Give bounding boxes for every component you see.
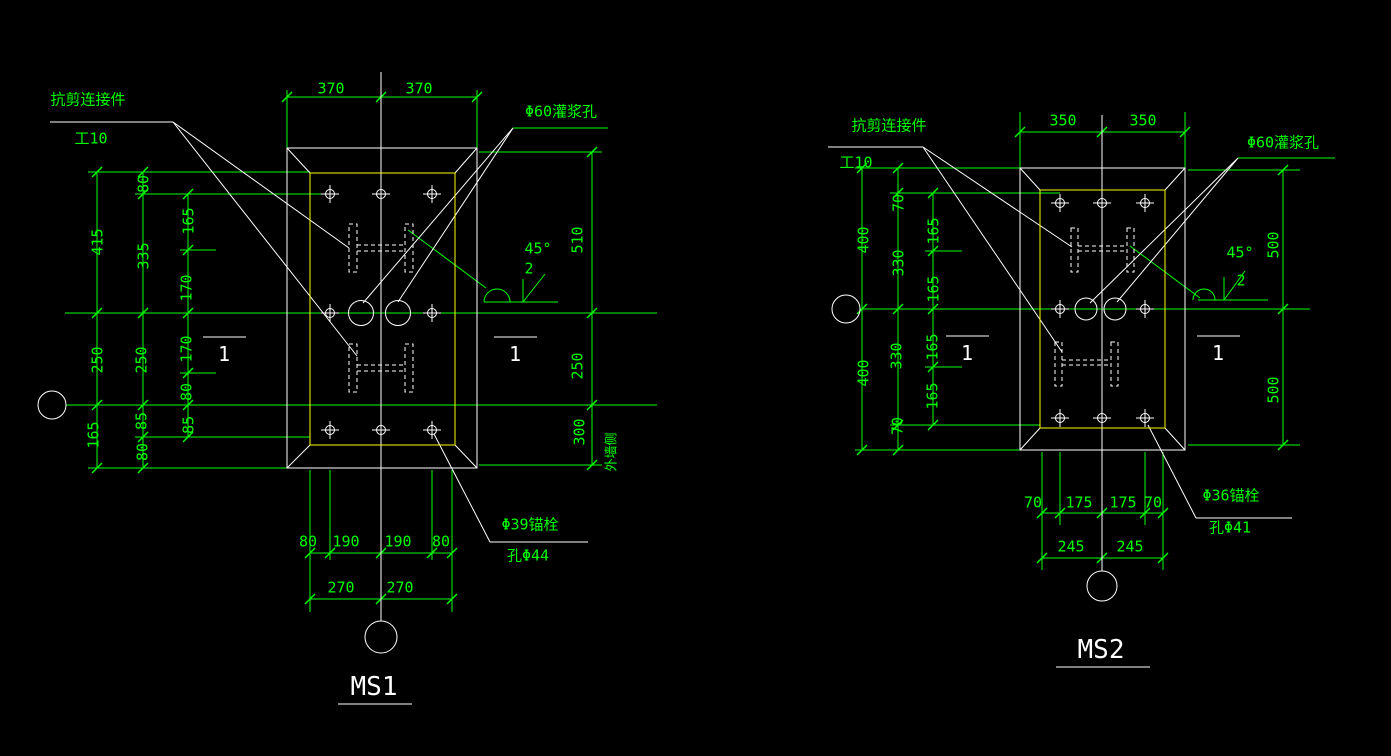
engineering-drawing-svg	[0, 0, 1391, 756]
dim-label: 400	[857, 226, 872, 253]
dim-label: 370	[317, 82, 344, 97]
axis-bubble	[832, 295, 860, 323]
dim-label: 250	[135, 346, 150, 373]
dim-label: 400	[857, 359, 872, 386]
dim-label: 245	[1116, 540, 1143, 555]
dim-label: 270	[386, 581, 413, 596]
axis-bubble	[38, 391, 66, 419]
dim-label: 415	[91, 228, 106, 255]
section-mark: 1	[218, 344, 230, 364]
dim-label: 80	[432, 535, 450, 550]
wall-side-label: 外墙侧	[606, 432, 619, 471]
shear-connector-label: 抗剪连接件	[851, 119, 926, 134]
bevel-angle-label: 45°	[524, 242, 551, 257]
dim-label: 350	[1049, 114, 1076, 129]
grout-hole-label: Φ60灌浆孔	[1247, 136, 1319, 151]
anchor-bolt-markers	[321, 185, 1154, 439]
dim-label: 370	[405, 82, 432, 97]
dim-label: 245	[1057, 540, 1084, 555]
dim-label: 70	[891, 417, 906, 435]
dim-label: 190	[384, 535, 411, 550]
section-mark: 1	[509, 344, 521, 364]
section-mark: 1	[961, 343, 973, 363]
detail-title-circle	[1087, 571, 1117, 601]
dim-label: 190	[332, 535, 359, 550]
dim-label: 80	[180, 383, 195, 401]
shear-connector-label: 抗剪连接件	[50, 93, 125, 108]
view-title: MS2	[1078, 637, 1125, 663]
dim-label: 85	[182, 416, 197, 434]
dim-label: 165	[182, 207, 197, 234]
dim-label: 70	[1024, 496, 1042, 511]
shear-connector-size-label: 工10	[74, 132, 107, 147]
shear-connector-size-label: 工10	[839, 156, 872, 171]
dim-label: 350	[1129, 114, 1156, 129]
dim-label: 335	[137, 242, 152, 269]
ibeam-hidden-lines	[349, 224, 1134, 392]
section-mark: 1	[1212, 343, 1224, 363]
dim-label: 165	[926, 382, 941, 409]
cad-canvas: 抗剪连接件工10Φ60灌浆孔37037041525016580335250858…	[0, 0, 1391, 756]
dim-label: 85	[135, 412, 150, 430]
dim-label: 170	[180, 335, 195, 362]
dim-label: 165	[927, 217, 942, 244]
grout-hole-label: Φ60灌浆孔	[525, 105, 597, 120]
dim-label: 500	[1267, 231, 1282, 258]
view-title: MS1	[351, 674, 398, 700]
dim-label: 175	[1065, 496, 1092, 511]
dim-label: 80	[299, 535, 317, 550]
dim-label: 80	[136, 443, 151, 461]
detail-title-circle	[365, 621, 397, 653]
dim-label: 270	[327, 581, 354, 596]
bevel-angle-label: 45°	[1226, 246, 1253, 261]
anchor-bolt-hole-label: 孔Φ41	[1209, 521, 1251, 536]
dim-label: 175	[1109, 496, 1136, 511]
anchor-bolt-label: Φ36锚栓	[1202, 489, 1259, 504]
bevel-size-label: 2	[1236, 274, 1245, 289]
dim-label: 300	[573, 418, 588, 445]
bevel-angle-arc	[484, 289, 510, 302]
dim-label: 250	[91, 346, 106, 373]
anchor-bolt-hole-label: 孔Φ44	[507, 549, 549, 564]
dim-label: 500	[1267, 376, 1282, 403]
dim-label: 165	[926, 333, 941, 360]
anchor-bolt-label: Φ39锚栓	[501, 518, 558, 533]
dim-label: 510	[571, 226, 586, 253]
dimension-ticks	[92, 92, 1288, 604]
dim-label: 250	[571, 352, 586, 379]
dim-label: 330	[892, 249, 907, 276]
bevel-angle-arc	[1193, 289, 1215, 300]
dim-label: 70	[1144, 496, 1162, 511]
dim-label: 70	[892, 194, 907, 212]
dim-label: 330	[890, 342, 905, 369]
dim-label: 165	[927, 275, 942, 302]
left-plate-outer-outline	[287, 148, 477, 468]
object-lines	[50, 72, 1292, 704]
dim-label: 165	[87, 421, 102, 448]
bevel-size-label: 2	[524, 262, 533, 277]
dim-label: 170	[180, 274, 195, 301]
dim-label: 80	[137, 175, 152, 193]
